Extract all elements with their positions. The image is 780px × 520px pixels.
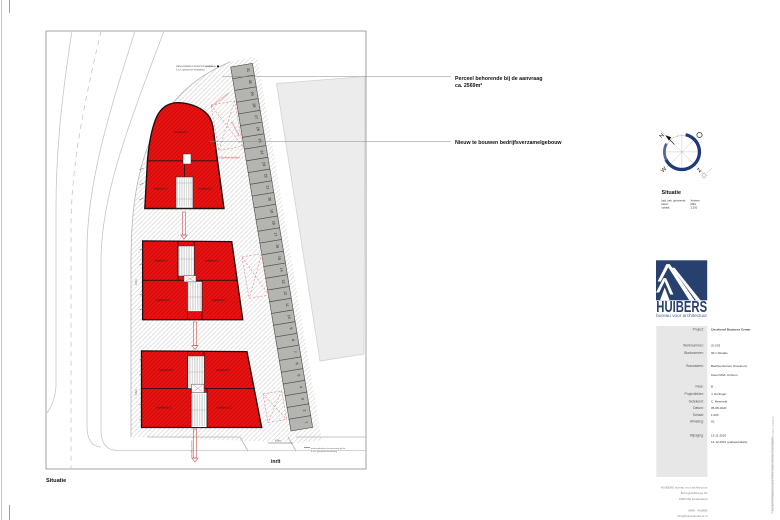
svg-text:1:200: 1:200 (711, 413, 719, 417)
svg-text:schaal:: schaal: (662, 206, 671, 210)
svg-text:10: 10 (287, 314, 292, 319)
svg-text:25: 25 (258, 138, 263, 143)
svg-text:Situatie: Situatie (46, 478, 66, 484)
svg-text:ca. 2569m²: ca. 2569m² (455, 83, 482, 89)
svg-text:C. Meerveld: C. Meerveld (711, 399, 728, 403)
svg-text:14-12-2021 (parkeerplaats): 14-12-2021 (parkeerplaats) (711, 440, 747, 444)
svg-text:29: 29 (250, 91, 255, 96)
svg-text:16: 16 (275, 244, 280, 249)
svg-text:26: 26 (256, 127, 261, 132)
svg-text:bedrijfsunit 5: bedrijfsunit 5 (205, 260, 219, 263)
svg-text:0488 - 460886: 0488 - 460886 (688, 508, 708, 512)
svg-text:bedrijfsunit 1: bedrijfsunit 1 (174, 131, 188, 134)
svg-text:Situatie: Situatie (662, 190, 681, 196)
svg-text:23: 23 (261, 162, 266, 167)
svg-text:kavel:: kavel: (662, 202, 669, 206)
svg-text:bedrijfsunit 8: bedrijfsunit 8 (159, 369, 173, 372)
svg-text:1:200: 1:200 (691, 206, 698, 210)
svg-text:05-08-2020: 05-08-2020 (711, 406, 727, 410)
svg-text:parkeerplaatsen bestemming bij: parkeerplaatsen bestemming bij de (311, 447, 346, 450)
svg-text:ontsluiting terrein: ontsluiting terrein (191, 440, 194, 458)
svg-text:Arnhem: Arnhem (691, 199, 701, 203)
svg-text:inrit: inrit (271, 459, 281, 465)
svg-text:bedrijfsunit 10: bedrijfsunit 10 (157, 407, 173, 410)
svg-text:Bouwadres:: Bouwadres: (686, 364, 703, 368)
svg-text:h.o.h. gemeente bestrating: h.o.h. gemeente bestrating (311, 450, 338, 453)
svg-text:Datum:: Datum: (693, 406, 704, 410)
svg-text:11: 11 (285, 303, 290, 307)
svg-text:31: 31 (246, 68, 251, 73)
svg-text:bedrijfsunit 4: bedrijfsunit 4 (154, 260, 168, 263)
svg-text:bedrijfsunit 9: bedrijfsunit 9 (216, 369, 230, 372)
svg-text:6669 MH Dodewaard: 6669 MH Dodewaard (679, 497, 708, 501)
svg-text:Schaal:: Schaal: (693, 413, 704, 417)
svg-text:Wijziging:: Wijziging: (690, 433, 704, 437)
svg-text:18: 18 (271, 220, 276, 225)
svg-text:J. Durlinger: J. Durlinger (711, 392, 726, 396)
svg-text:bedrijfsunit 3: bedrijfsunit 3 (198, 188, 212, 191)
svg-text:bureau voor architectuur: bureau voor architectuur (656, 313, 707, 318)
svg-text:Kavel M4A, Arnhem: Kavel M4A, Arnhem (711, 373, 738, 377)
svg-text:27: 27 (254, 115, 259, 120)
svg-text:Fase:: Fase: (696, 384, 704, 388)
svg-text:14: 14 (279, 267, 284, 272)
svg-text:22: 22 (263, 174, 268, 179)
svg-text:Perceel behorende bij de aanvr: Perceel behorende bij de aanvraag (455, 76, 542, 82)
svg-text:3.5m: 3.5m (135, 390, 138, 395)
svg-text:12: 12 (283, 291, 288, 296)
svg-text:HUIBERS bureau voor architectu: HUIBERS bureau voor architectuur (661, 485, 708, 489)
svg-text:bedrijfsunit 7: bedrijfsunit 7 (212, 299, 226, 302)
svg-text:30: 30 (248, 80, 253, 85)
svg-text:Bonegraafseweg 6b: Bonegraafseweg 6b (681, 491, 708, 495)
svg-text:00.1 Situatie: 00.1 Situatie (711, 351, 728, 355)
svg-text:24: 24 (259, 150, 264, 155)
svg-text:20 033: 20 033 (711, 343, 721, 347)
svg-text:Getekend:: Getekend: (689, 399, 704, 403)
svg-text:Afmeting:: Afmeting: (690, 419, 704, 423)
svg-text:6.0m: 6.0m (275, 439, 281, 443)
svg-text:19: 19 (269, 209, 274, 214)
svg-text:Werknummer:: Werknummer: (683, 343, 704, 347)
svg-text:bedrijfsunit 6: bedrijfsunit 6 (156, 299, 170, 302)
svg-text:Project:: Project: (693, 328, 704, 332)
svg-text:28: 28 (252, 103, 257, 108)
svg-text:aan deze tekening kunnen geen: aan deze tekening kunnen geen rechten wo… (771, 415, 774, 511)
svg-text:20: 20 (267, 197, 272, 202)
svg-text:M4A: M4A (691, 202, 697, 206)
svg-text:Bladnummer:: Bladnummer: (684, 351, 704, 355)
svg-text:B: B (711, 384, 713, 388)
svg-text:bedrijfsunit 11: bedrijfsunit 11 (217, 407, 232, 410)
svg-text:13: 13 (281, 279, 286, 284)
svg-text:info@bureauhuibers.nl: info@bureauhuibers.nl (677, 514, 708, 518)
svg-text:15: 15 (277, 256, 282, 261)
svg-text:2.7m: 2.7m (135, 280, 138, 285)
svg-text:Bedrijventerrein IJsseloord,: Bedrijventerrein IJsseloord, (711, 364, 748, 368)
svg-text:bedrijfsunit 2: bedrijfsunit 2 (153, 188, 167, 191)
svg-text:13-11-2020: 13-11-2020 (711, 433, 726, 437)
svg-text:Nieuw te bouwen bedrijfsverzam: Nieuw te bouwen bedrijfsverzamelgebouw (455, 140, 562, 146)
svg-text:kad. bek. gemeente:: kad. bek. gemeente: (662, 199, 687, 203)
svg-text:17: 17 (273, 232, 278, 237)
svg-text:h.o.h. gemeente bestrating: h.o.h. gemeente bestrating (176, 69, 205, 72)
svg-text:A1: A1 (711, 419, 715, 423)
svg-text:21: 21 (265, 185, 270, 190)
svg-text:IJsseloord Business Center: IJsseloord Business Center (711, 328, 751, 332)
svg-text:3 parkeerplaatsen: 3 parkeerplaatsen (219, 156, 240, 160)
svg-text:Projectleider:: Projectleider: (685, 392, 704, 396)
